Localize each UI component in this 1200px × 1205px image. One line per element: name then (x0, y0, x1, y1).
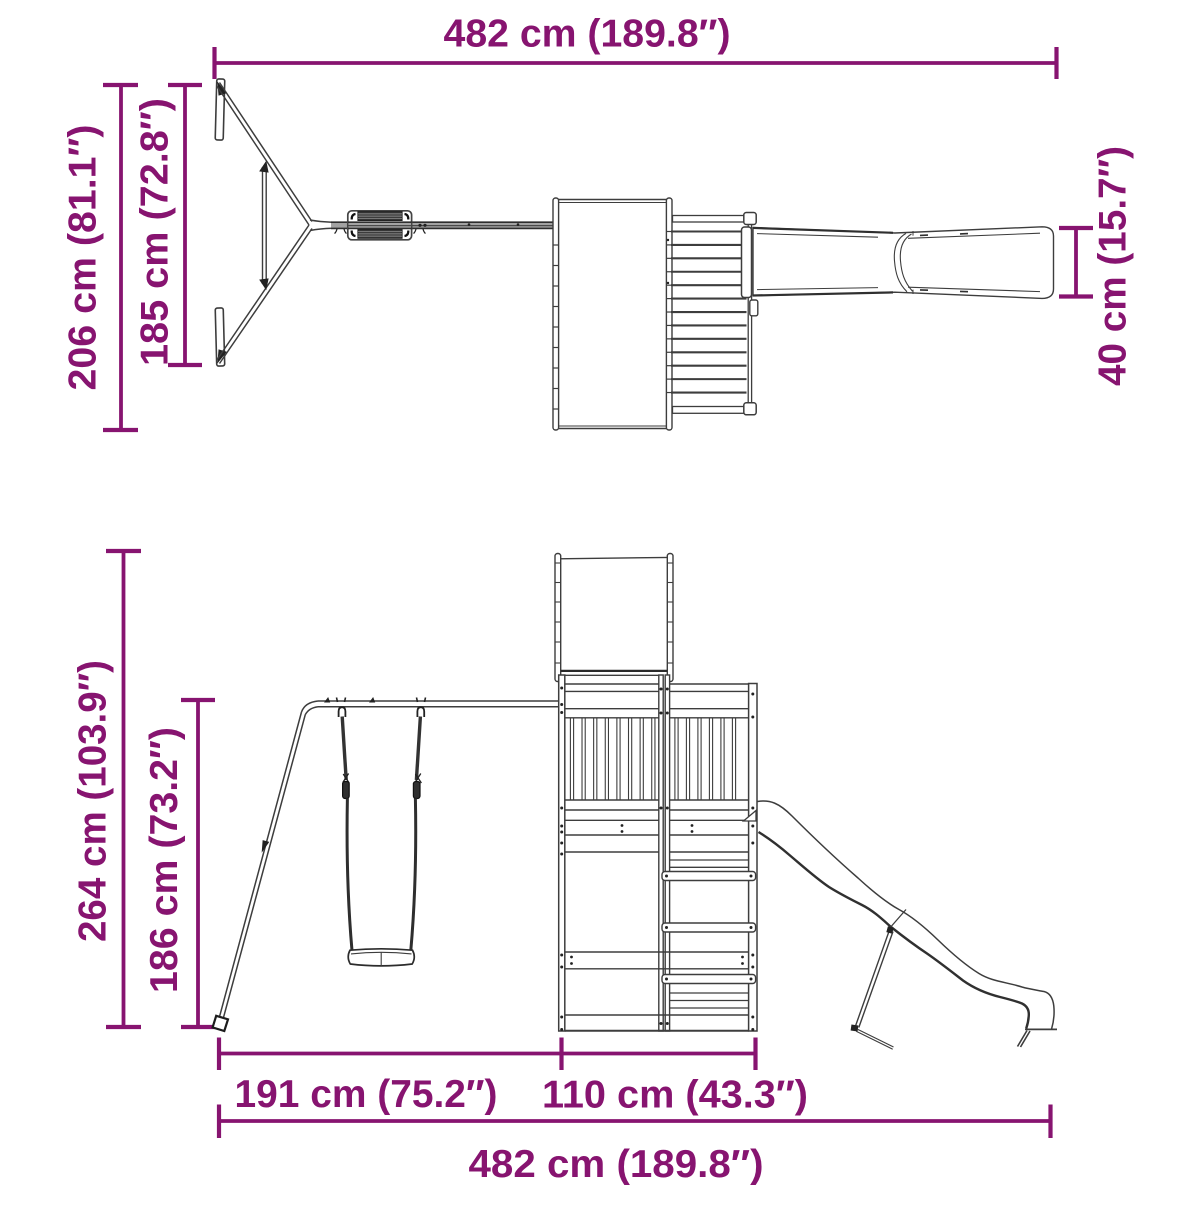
svg-text:206 cm (81.1″): 206 cm (81.1″) (62, 125, 105, 391)
svg-text:482 cm (189.8″): 482 cm (189.8″) (469, 1143, 764, 1186)
svg-text:482 cm (189.8″): 482 cm (189.8″) (444, 13, 731, 56)
svg-text:191 cm (75.2″): 191 cm (75.2″) (235, 1073, 498, 1116)
svg-text:264 cm (103.9″): 264 cm (103.9″) (72, 660, 115, 942)
svg-text:185 cm (72.8″): 185 cm (72.8″) (134, 98, 177, 366)
svg-text:186 cm (73.2″): 186 cm (73.2″) (143, 727, 186, 993)
svg-text:110 cm (43.3″): 110 cm (43.3″) (542, 1074, 808, 1117)
svg-text:40 cm (15.7″): 40 cm (15.7″) (1092, 146, 1135, 386)
